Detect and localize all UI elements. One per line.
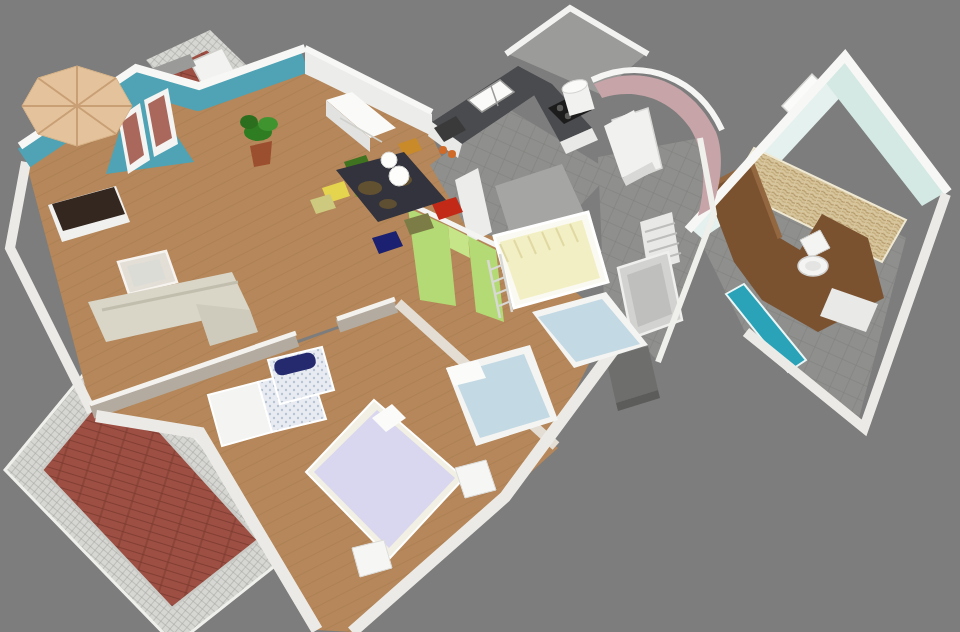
orange-item — [439, 146, 447, 154]
pendant-globe-2 — [389, 166, 409, 186]
patio-umbrella — [22, 66, 132, 146]
floorplan-render: 3D isometric cutaway rendering of a furn… — [0, 0, 960, 632]
orange-item-2 — [448, 150, 456, 158]
floorplan-svg — [0, 0, 960, 632]
pendant-globe-1 — [381, 152, 397, 168]
